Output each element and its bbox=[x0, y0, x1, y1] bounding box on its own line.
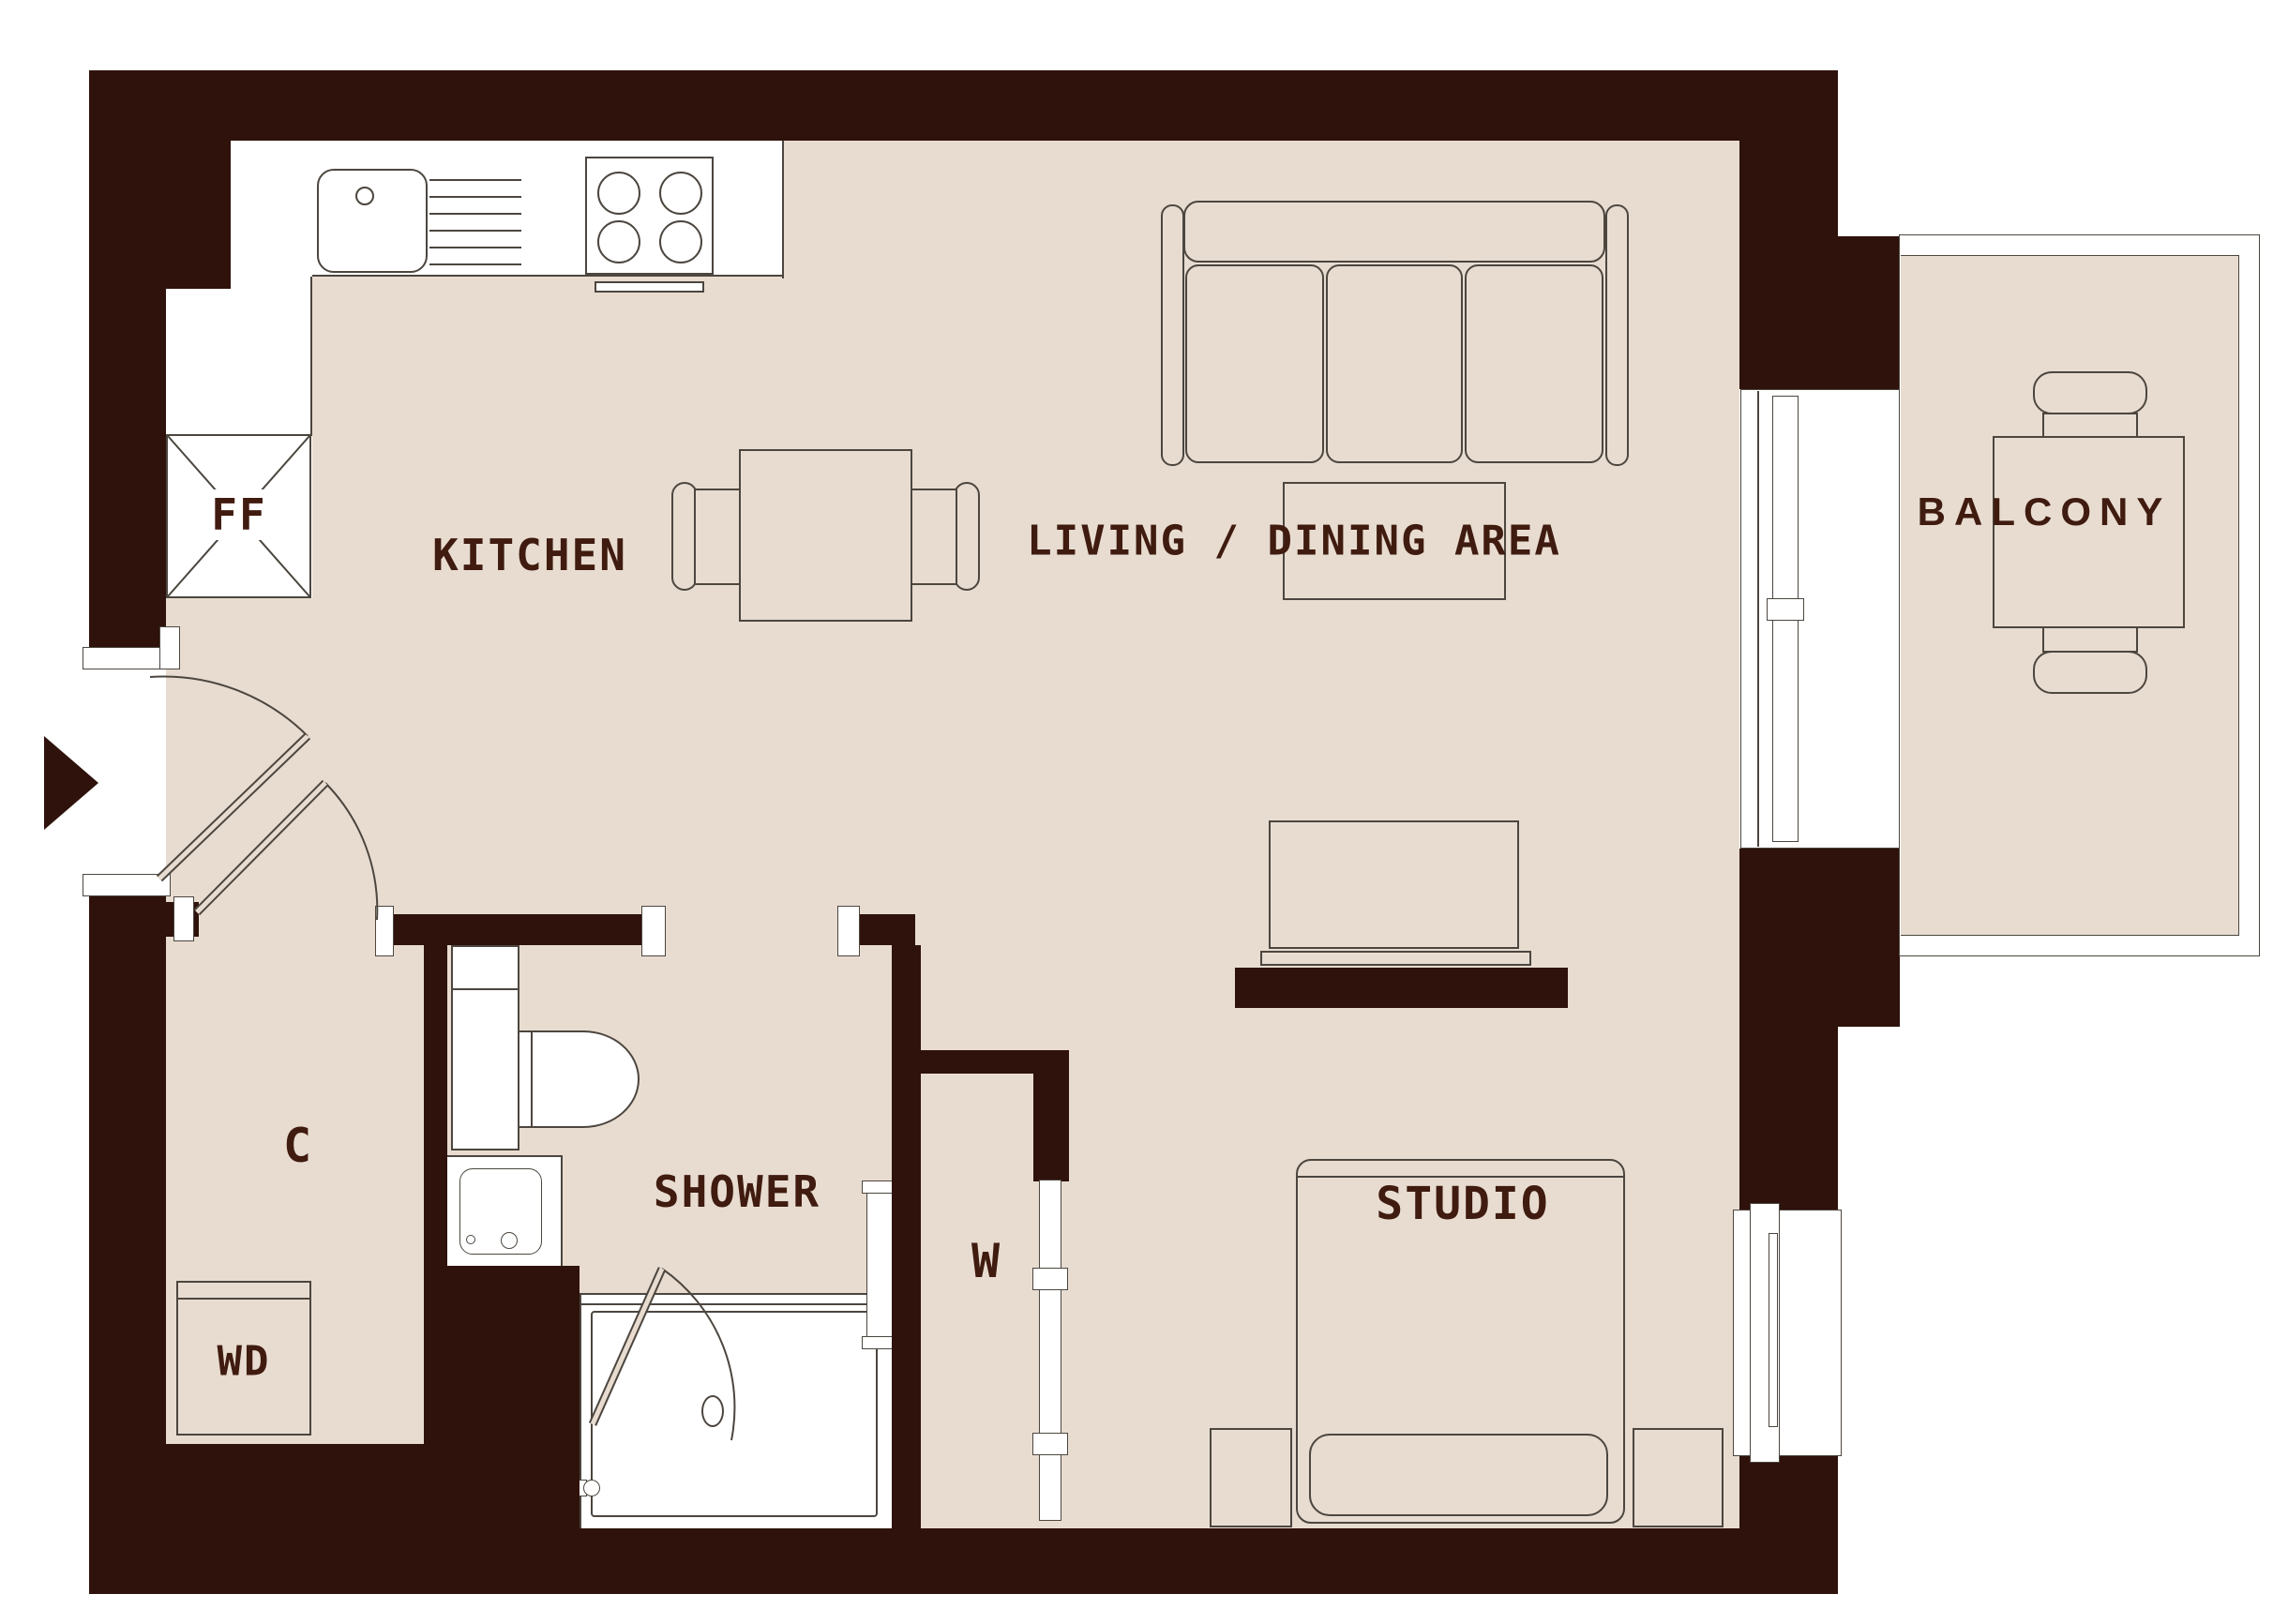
balcony-chair-top bbox=[2042, 413, 2138, 438]
counter-edge-front bbox=[312, 275, 784, 277]
entry-arrow-icon bbox=[44, 736, 98, 830]
label-fridge-freezer-ff: FF bbox=[207, 489, 270, 540]
toilet-cistern bbox=[451, 945, 519, 990]
wall-right-lower bbox=[1739, 1456, 1838, 1594]
sofa-back bbox=[1183, 201, 1605, 263]
wall-bottom bbox=[89, 1528, 1838, 1594]
label-kitchen: KITCHEN bbox=[432, 530, 627, 580]
balcony-chair-bottom-back bbox=[2033, 651, 2147, 694]
bed-footboard-cushion bbox=[1309, 1434, 1608, 1516]
basin-tap-hole bbox=[466, 1235, 475, 1244]
oven-handle bbox=[595, 281, 704, 293]
label-closet-c: C bbox=[283, 1119, 313, 1173]
sofa-seat bbox=[1185, 264, 1324, 463]
wall-right-pier bbox=[1739, 849, 1838, 1210]
label-shower: SHOWER bbox=[654, 1166, 820, 1217]
shower-tray-track bbox=[580, 1303, 896, 1305]
balcony-door-sash bbox=[1772, 617, 1799, 842]
floor-plan: KITCHEN LIVING / DINING AREA BALCONY SHO… bbox=[0, 0, 2273, 1624]
hob-ring-icon bbox=[597, 220, 640, 263]
dining-table bbox=[739, 449, 912, 622]
bath-tap-icon bbox=[583, 1480, 600, 1496]
dining-chair-right bbox=[911, 489, 957, 585]
drain-icon bbox=[701, 1395, 724, 1427]
dining-chair-right-back bbox=[954, 482, 980, 591]
label-washer-dryer-wd: WD bbox=[218, 1338, 271, 1386]
balcony-door-latch bbox=[1767, 598, 1804, 621]
counter-edge-side bbox=[310, 277, 312, 436]
wall-wardrobe-top bbox=[915, 1050, 1069, 1074]
wardrobe-sliding-door-stop bbox=[1032, 1433, 1068, 1455]
entrance-jamb-tick bbox=[173, 896, 194, 941]
counter-edge-right bbox=[782, 141, 784, 278]
label-balcony: BALCONY bbox=[1918, 489, 2172, 534]
balcony-chair-top-back bbox=[2033, 371, 2147, 414]
wall-wardrobe-cap bbox=[1033, 1074, 1069, 1181]
sofa-arm-left bbox=[1161, 204, 1184, 466]
label-wardrobe-w: W bbox=[971, 1234, 1001, 1288]
wall-left-upper bbox=[89, 70, 166, 668]
hob-ring-icon bbox=[597, 172, 640, 215]
sofa-seat bbox=[1465, 264, 1603, 463]
shower-tray-inner bbox=[591, 1311, 878, 1517]
wall-balcony-reveal-top bbox=[1836, 236, 1900, 389]
wall-shower-top-left bbox=[387, 914, 645, 945]
wall-right-upper bbox=[1739, 141, 1838, 389]
balcony-door-window bbox=[1740, 389, 1902, 849]
kitchen-sink bbox=[317, 169, 428, 273]
label-studio: STUDIO bbox=[1376, 1178, 1549, 1230]
radiator bbox=[866, 1187, 893, 1348]
doorway-jamb bbox=[375, 906, 394, 956]
wardrobe-sliding-door-track bbox=[1039, 1180, 1061, 1521]
wall-block-bath-left bbox=[424, 1266, 580, 1528]
media-wall bbox=[1235, 968, 1568, 1008]
doorway-jamb bbox=[837, 906, 860, 956]
toilet-bowl-line bbox=[531, 1032, 533, 1126]
hob-ring-icon bbox=[659, 220, 702, 263]
hob-ring-icon bbox=[659, 172, 702, 215]
entrance-jamb-tick bbox=[159, 626, 180, 669]
balcony-door-sash bbox=[1772, 396, 1799, 611]
entrance-jamb-bottom bbox=[83, 874, 171, 896]
wall-shower-top-right bbox=[860, 914, 915, 945]
wall-top bbox=[89, 70, 1838, 141]
tv-shelf bbox=[1260, 951, 1531, 966]
label-living-dining: LIVING / DINING AREA bbox=[1027, 518, 1561, 565]
wardrobe-sliding-door-stop bbox=[1032, 1268, 1068, 1290]
wall-left-lower bbox=[89, 891, 166, 1594]
studio-window-glass-line bbox=[1769, 1233, 1778, 1427]
wall-wardrobe-left bbox=[892, 945, 921, 1540]
balcony-door-window-mullion bbox=[1757, 391, 1759, 847]
wall-balcony-reveal-bottom bbox=[1836, 849, 1900, 1027]
basin-tap-hole bbox=[501, 1232, 518, 1249]
sink-faucet-icon bbox=[355, 187, 374, 205]
toilet-bowl bbox=[518, 1030, 640, 1128]
dining-chair-left bbox=[694, 489, 741, 585]
bedside-table-right bbox=[1633, 1428, 1724, 1527]
entrance-jamb-top bbox=[83, 647, 171, 669]
sofa-arm-right bbox=[1605, 204, 1629, 466]
bedside-table-left bbox=[1210, 1428, 1292, 1527]
toilet-unit bbox=[451, 988, 519, 1150]
washer-dryer-divider bbox=[178, 1298, 309, 1300]
doorway-jamb bbox=[641, 906, 666, 956]
tv-unit bbox=[1269, 820, 1519, 949]
balcony-chair-bottom bbox=[2042, 626, 2138, 653]
sofa-seat bbox=[1326, 264, 1463, 463]
